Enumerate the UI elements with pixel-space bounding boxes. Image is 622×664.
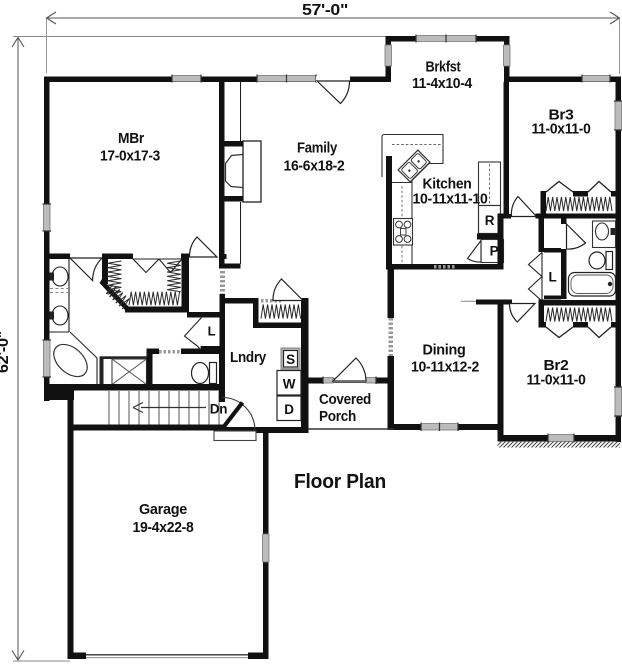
svg-text:Dn: Dn [210, 402, 227, 417]
svg-text:17-0x17-3: 17-0x17-3 [100, 148, 160, 165]
svg-text:Covered: Covered [319, 392, 371, 408]
svg-text:Family: Family [297, 140, 338, 157]
svg-text:R: R [485, 213, 495, 228]
svg-text:S: S [286, 352, 295, 367]
svg-text:Kitchen: Kitchen [423, 177, 472, 193]
svg-text:10-11x12-2: 10-11x12-2 [411, 360, 479, 376]
svg-text:Floor Plan: Floor Plan [294, 471, 386, 493]
svg-text:P: P [490, 244, 499, 259]
svg-text:L: L [549, 270, 557, 285]
svg-text:W: W [283, 377, 296, 392]
svg-text:Brkfst: Brkfst [426, 60, 461, 76]
svg-text:57'-0": 57'-0" [302, 2, 348, 19]
svg-text:62'-0": 62'-0" [0, 331, 12, 373]
svg-text:L: L [208, 324, 216, 339]
svg-text:19-4x22-8: 19-4x22-8 [133, 519, 194, 536]
svg-text:MBr: MBr [118, 130, 144, 147]
svg-text:Porch: Porch [319, 409, 356, 425]
svg-text:D: D [284, 402, 294, 417]
svg-text:Garage: Garage [139, 501, 187, 518]
svg-text:11-4x10-4: 11-4x10-4 [412, 76, 472, 92]
svg-text:11-0x11-0: 11-0x11-0 [527, 373, 586, 389]
svg-text:16-6x18-2: 16-6x18-2 [284, 158, 345, 175]
svg-text:Lndry: Lndry [230, 350, 266, 366]
svg-text:11-0x11-0: 11-0x11-0 [532, 122, 591, 138]
svg-text:Dining: Dining [423, 343, 466, 359]
svg-text:10-11x11-10: 10-11x11-10 [413, 192, 488, 208]
